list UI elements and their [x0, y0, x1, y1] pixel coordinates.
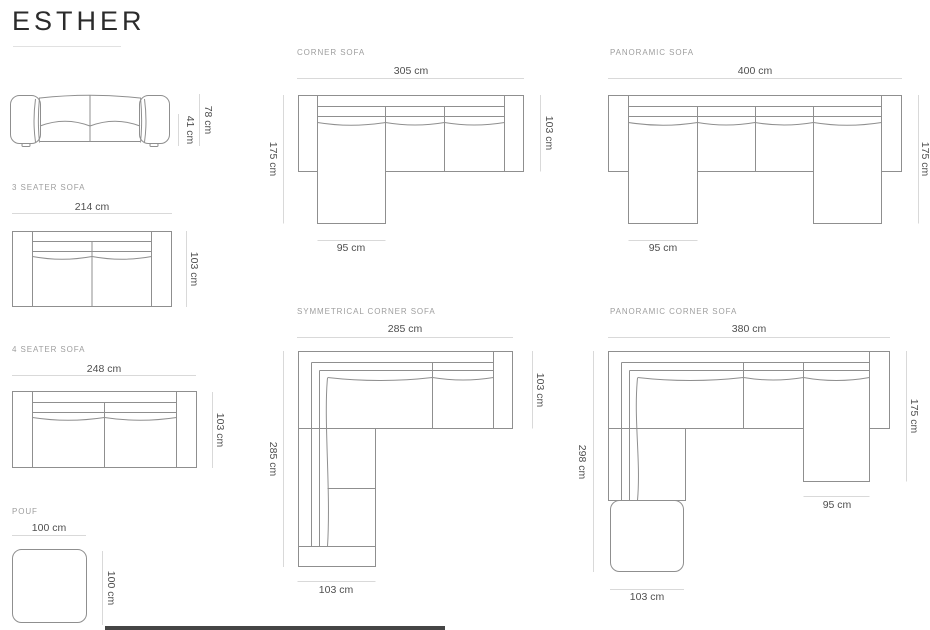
page-title: ESTHER	[12, 6, 146, 37]
title-underline	[13, 46, 121, 47]
panoramic-sofa-plan-drawing	[609, 96, 902, 224]
diagram-linework	[0, 0, 930, 630]
corner-width-dim: 305 cm	[394, 65, 428, 77]
panoramic-width-dim: 400 cm	[738, 65, 772, 77]
front-total-height-dim: 78 cm	[202, 106, 214, 135]
pouf-depth-dim: 100 cm	[105, 571, 117, 605]
four-seater-depth-dim: 103 cm	[214, 413, 226, 447]
panoramic-corner-side-depth-dim: 175 cm	[908, 399, 920, 433]
dimensions-page: ESTHER 3 SEATER SOFA 4 SEATER SOFA POUF …	[0, 0, 930, 630]
symmetrical-corner-plan-drawing	[299, 352, 513, 567]
corner-side-depth-dim: 175 cm	[267, 142, 279, 176]
symmetrical-corner-label: SYMMETRICAL CORNER SOFA	[297, 307, 436, 316]
panoramic-corner-wing-width-dim: 103 cm	[630, 591, 664, 603]
panoramic-chaise-width-dim: 95 cm	[649, 242, 678, 254]
horizontal-scrollbar-thumb[interactable]	[105, 626, 445, 630]
pouf-dimension-lines	[12, 536, 103, 626]
pouf-plan-drawing	[13, 550, 87, 623]
symmetrical-corner-dimension-lines	[284, 338, 533, 582]
corner-sofa-label: CORNER SOFA	[297, 48, 365, 57]
four-seater-dimension-lines	[12, 376, 213, 469]
panoramic-sofa-dimension-lines	[608, 79, 919, 241]
corner-back-depth-dim: 103 cm	[543, 116, 555, 150]
panoramic-corner-width-dim: 380 cm	[732, 323, 766, 335]
panoramic-corner-chaise-width-dim: 95 cm	[823, 499, 852, 511]
symmetrical-width-dim: 285 cm	[388, 323, 422, 335]
symmetrical-wing-width-dim: 103 cm	[319, 584, 353, 596]
three-seater-dimension-lines	[12, 214, 187, 308]
front-seat-height-dim: 41 cm	[184, 116, 196, 145]
three-seater-plan-drawing	[13, 232, 172, 307]
panoramic-corner-plan-drawing	[609, 352, 890, 572]
corner-sofa-dimension-lines	[284, 79, 541, 241]
panoramic-corner-dimension-lines	[594, 338, 907, 590]
three-seater-width-dim: 214 cm	[75, 201, 109, 213]
corner-sofa-plan-drawing	[299, 96, 524, 224]
pouf-width-dim: 100 cm	[32, 522, 66, 534]
four-seater-label: 4 SEATER SOFA	[12, 345, 85, 354]
panoramic-corner-label: PANORAMIC CORNER SOFA	[610, 307, 737, 316]
panoramic-sofa-label: PANORAMIC SOFA	[610, 48, 694, 57]
front-elevation-drawing	[11, 95, 170, 146]
four-seater-width-dim: 248 cm	[87, 363, 121, 375]
pouf-label: POUF	[12, 507, 38, 516]
three-seater-depth-dim: 103 cm	[188, 252, 200, 286]
panoramic-side-depth-dim: 175 cm	[919, 142, 930, 176]
symmetrical-left-length-dim: 285 cm	[267, 442, 279, 476]
four-seater-plan-drawing	[13, 392, 197, 468]
panoramic-corner-left-length-dim: 298 cm	[576, 445, 588, 479]
three-seater-label: 3 SEATER SOFA	[12, 183, 85, 192]
symmetrical-back-depth-dim: 103 cm	[534, 373, 546, 407]
corner-chaise-width-dim: 95 cm	[337, 242, 366, 254]
